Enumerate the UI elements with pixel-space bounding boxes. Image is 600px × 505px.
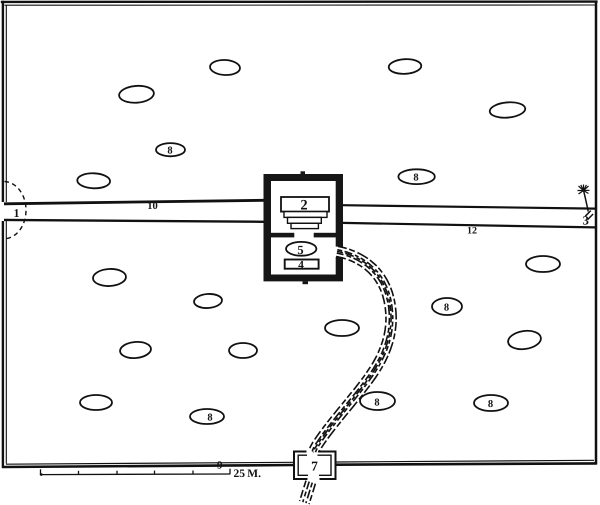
svg-text:10: 10 [147,201,158,212]
svg-text:25 M.: 25 M. [234,468,262,480]
svg-text:3: 3 [583,214,589,228]
svg-text:1: 1 [14,206,20,220]
svg-text:5: 5 [297,243,303,257]
svg-text:8: 8 [374,397,379,408]
svg-text:8: 8 [488,399,493,410]
svg-text:4: 4 [298,259,304,271]
svg-text:8: 8 [167,146,172,157]
svg-text:8: 8 [413,173,418,184]
svg-text:9: 9 [217,460,223,472]
svg-text:8: 8 [207,413,212,424]
svg-text:2: 2 [300,198,307,214]
svg-text:8: 8 [444,303,449,314]
svg-text:12: 12 [467,225,477,236]
svg-text:7: 7 [311,459,318,474]
